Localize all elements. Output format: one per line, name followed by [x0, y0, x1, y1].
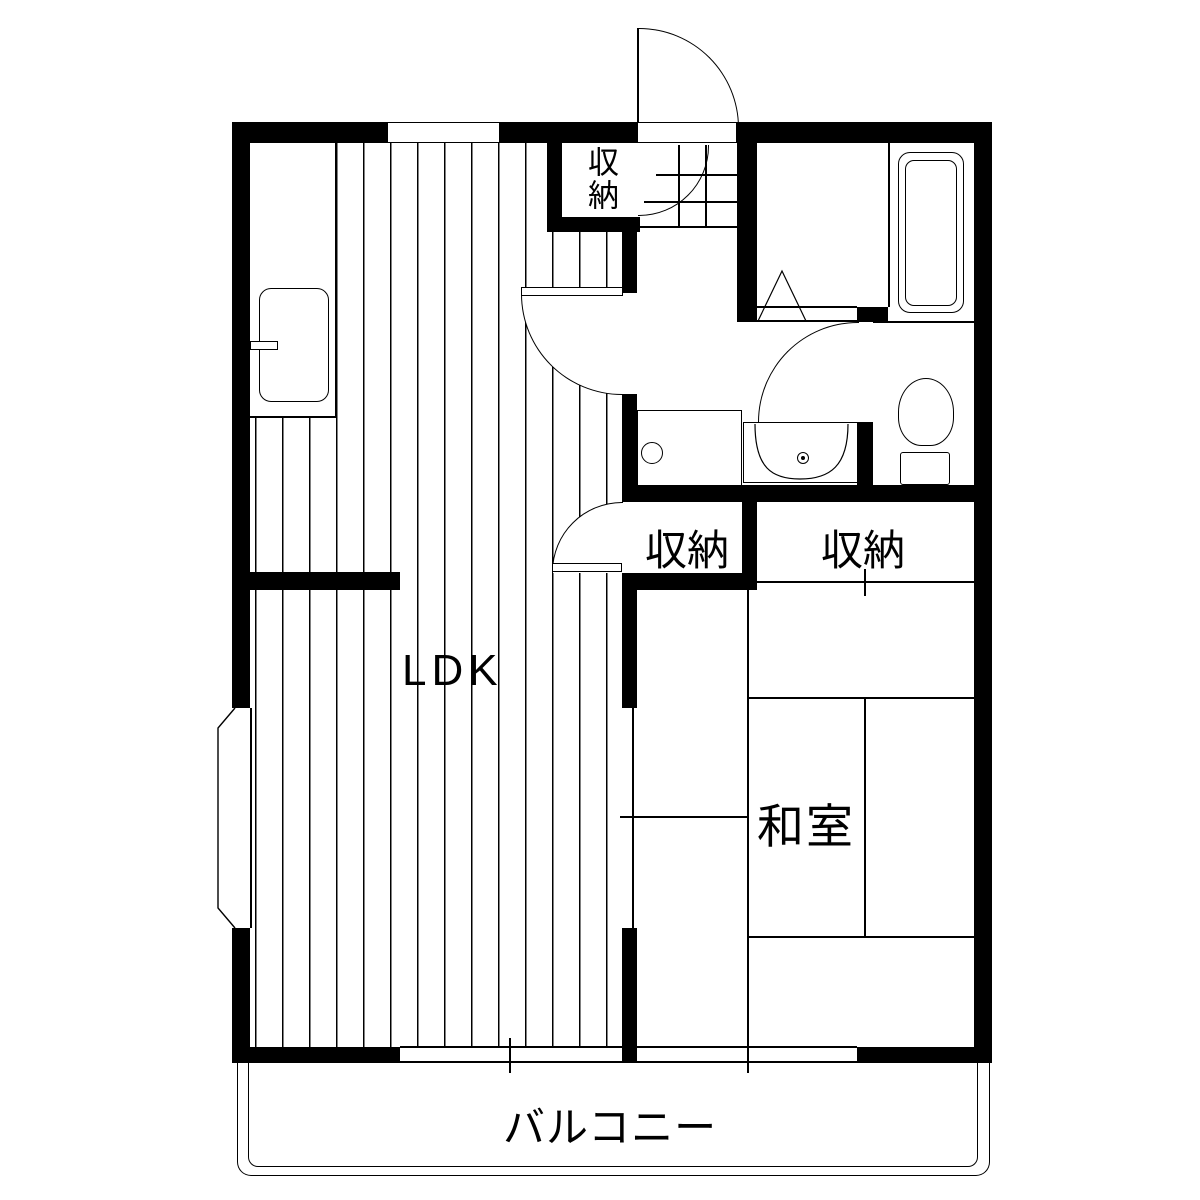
- wall-top-right: [737, 122, 992, 143]
- genkan-step-line: [637, 226, 737, 228]
- bay-window-outline: [218, 708, 235, 928]
- wall-closet-divider: [742, 502, 757, 573]
- wall-hall-a: [622, 232, 637, 293]
- kitchen-counter-edge: [335, 143, 337, 417]
- washitsu-label: 和室: [757, 788, 855, 857]
- wall-genkan-right: [737, 143, 757, 322]
- bathroom-tub-divider: [888, 143, 890, 307]
- wall-hall-c: [622, 573, 637, 708]
- wall-top-mid: [500, 122, 637, 143]
- ldk-window-bottom: [400, 1061, 622, 1063]
- tatami-line-h2: [748, 936, 974, 938]
- wall-entry-closet-bottom: [547, 217, 640, 232]
- closet-fusuma-line: [757, 581, 974, 583]
- ldk-window-tick: [509, 1038, 511, 1073]
- ldk-top-window: [387, 122, 500, 143]
- wall-right: [974, 143, 992, 1063]
- wall-bottom-right: [857, 1047, 992, 1063]
- genkan-grid-v1: [678, 145, 680, 227]
- balcony-label: バルコニー: [503, 1094, 717, 1155]
- wall-washroom-bottom: [622, 485, 974, 502]
- ldk-label: LDK: [402, 646, 503, 696]
- washitsu-window-bottom: [637, 1061, 857, 1063]
- washbasin-faucet-dot: [801, 456, 805, 460]
- kitchen-counter-bottom: [250, 416, 337, 418]
- washitsu-storage-label: 収納: [821, 517, 905, 578]
- entry-storage-label: 収納: [578, 146, 623, 212]
- wall-bottom-left: [232, 1047, 400, 1063]
- tatami-line-h3: [637, 816, 748, 818]
- partition-tick: [620, 816, 646, 818]
- tatami-line-h1: [748, 697, 974, 699]
- wall-left-upper: [232, 122, 250, 708]
- ldk-washitsu-partition: [632, 708, 634, 928]
- wall-left-lower: [232, 928, 250, 1063]
- washitsu-window-top: [637, 1046, 857, 1048]
- tatami-line-v2: [864, 698, 866, 937]
- washbasin-bowl: [755, 424, 848, 479]
- bathroom-threshold-top: [755, 306, 857, 308]
- wall-kitchen-stub: [232, 572, 400, 590]
- bathroom-threshold-bottom: [755, 320, 857, 322]
- toilet-room-top-line: [873, 321, 974, 323]
- floor-plan: LDK 和室 収納 収納 収納 バルコニー: [0, 0, 1200, 1200]
- tatami-line-v1: [747, 590, 749, 1073]
- wall-top-left: [232, 122, 387, 143]
- entrance-opening: [637, 122, 737, 143]
- genkan-grid-v2: [705, 145, 707, 227]
- wall-toilet-left: [857, 422, 873, 485]
- ldk-window-top: [400, 1046, 622, 1048]
- entrance-door-leaf: [637, 28, 639, 129]
- genkan-grid-h1: [656, 174, 737, 176]
- hall-storage-label: 収納: [645, 517, 729, 578]
- wall-bath-bottom-nub: [857, 307, 888, 322]
- bay-window-inner-line: [250, 708, 252, 928]
- bathroom-folding-door-icon: [758, 271, 806, 321]
- genkan-grid-h2: [644, 201, 737, 203]
- wall-pillar-bottom: [622, 928, 637, 1063]
